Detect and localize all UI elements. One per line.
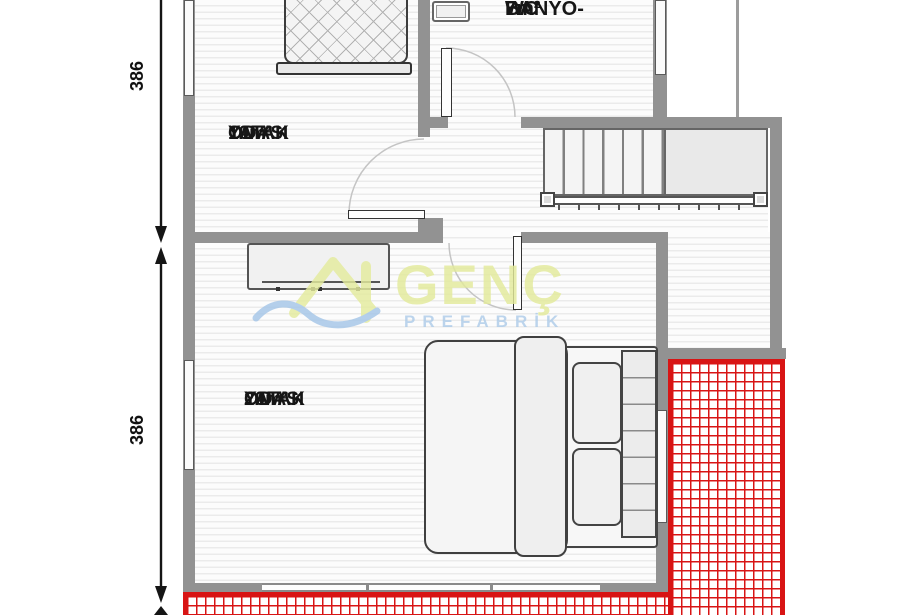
- dimension-line-balcony-stub: [154, 606, 168, 615]
- floor-plan: 386 386 BANYO- WC 7m² YATAK ODASI 10m² Y…: [0, 0, 916, 615]
- room-label-banyo-area: 7m²: [505, 0, 541, 23]
- dimension-label-bottom: 386: [127, 400, 149, 460]
- room-label-yatak20-area: 20m²: [244, 387, 288, 413]
- dimension-line-top: [155, 0, 167, 243]
- dimension-label-top: 386: [127, 46, 149, 106]
- room-label-yatak10-area: 10m²: [228, 121, 272, 147]
- dimension-line-bottom: [155, 247, 167, 603]
